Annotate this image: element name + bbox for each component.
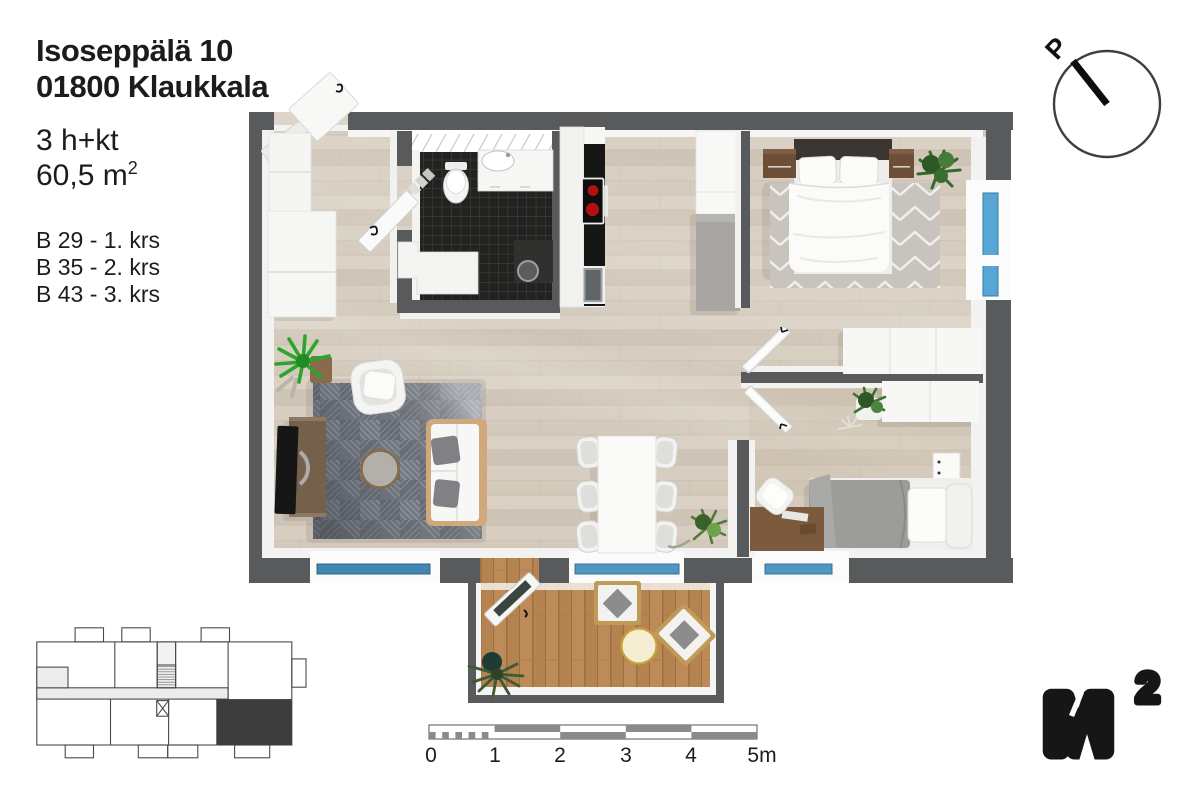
svg-text:B 35 - 2. krs: B 35 - 2. krs bbox=[36, 254, 160, 280]
svg-text:4: 4 bbox=[685, 744, 697, 767]
svg-text:0: 0 bbox=[425, 744, 437, 767]
svg-text:3 h+kt: 3 h+kt bbox=[36, 124, 119, 157]
svg-text:60,5 m2: 60,5 m2 bbox=[36, 158, 138, 192]
svg-text:2: 2 bbox=[554, 744, 566, 767]
svg-text:B 29 - 1. krs: B 29 - 1. krs bbox=[36, 227, 160, 253]
svg-text:B 43 - 3. krs: B 43 - 3. krs bbox=[36, 281, 160, 307]
svg-text:01800 Klaukkala: 01800 Klaukkala bbox=[36, 69, 269, 104]
svg-text:5m: 5m bbox=[747, 744, 776, 767]
svg-text:3: 3 bbox=[620, 744, 632, 767]
svg-text:Isoseppälä 10: Isoseppälä 10 bbox=[36, 33, 233, 68]
svg-text:1: 1 bbox=[489, 744, 501, 767]
svg-text:2: 2 bbox=[1136, 664, 1159, 711]
